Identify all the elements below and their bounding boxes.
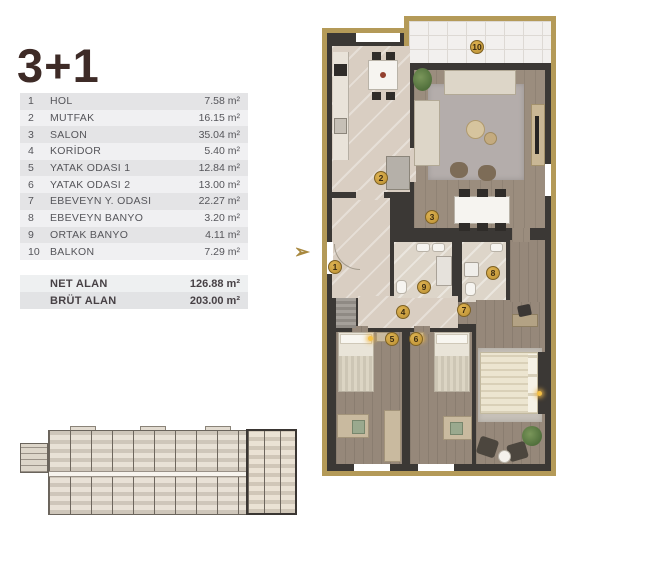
sofa (444, 70, 516, 95)
room-row-9: 9ORTAK BANYO4.11 m² (20, 227, 248, 244)
dining-chair (477, 189, 488, 197)
dining-chair (459, 223, 470, 231)
room-badge-balkon: 10 (470, 40, 484, 54)
room-row-1: 1HOL7.58 m² (20, 93, 248, 110)
summary-value: 126.88 m² (190, 278, 248, 290)
room-row-7: 7EBEVEYN Y. ODASI22.27 m² (20, 193, 248, 210)
bathroom-sink (490, 243, 503, 252)
summary-row-net-alan: NET ALAN126.88 m² (20, 275, 248, 292)
room-number: 2 (20, 112, 50, 124)
page-title: 3+1 (17, 42, 100, 89)
master-bedroom-entry-floor (510, 240, 545, 302)
living-window (545, 164, 551, 196)
room-badge-koridor: 4 (396, 305, 410, 319)
kitchen-chair (372, 92, 381, 100)
desk-chair (352, 420, 365, 434)
summary-row-brut-alan: BRÜT ALAN203.00 m² (20, 292, 248, 309)
plant-icon (522, 426, 542, 446)
summary-label: NET ALAN (20, 278, 190, 290)
kitchen-chair (386, 92, 395, 100)
room-number: 6 (20, 179, 50, 191)
room-number: 8 (20, 212, 50, 224)
wardrobe (384, 410, 401, 462)
pouf (478, 165, 496, 181)
floorplan-page: 3+1 1HOL7.58 m²2MUTFAK16.15 m²3SALON35.0… (0, 0, 660, 561)
room-name: EBEVEYN BANYO (50, 212, 204, 224)
room-name: YATAK ODASI 1 (50, 162, 199, 174)
dining-chair (459, 189, 470, 197)
room-area: 7.29 m² (204, 246, 248, 258)
room-number: 9 (20, 229, 50, 241)
room-number: 3 (20, 129, 50, 141)
bathroom-sink (416, 243, 430, 252)
room-name: BALKON (50, 246, 204, 258)
master-bed-pillows (528, 354, 537, 412)
toilet (396, 280, 407, 294)
bedroom1-window (354, 464, 390, 471)
room-area: 4.11 m² (205, 229, 248, 241)
kitchen-table-decor (380, 72, 386, 78)
entrance-arrow-icon: ➢ (294, 241, 310, 264)
bedroom2-window (418, 464, 454, 471)
room-number: 1 (20, 95, 50, 107)
toilet (465, 282, 476, 296)
bed-pillow (436, 334, 468, 344)
shower (436, 256, 452, 286)
dining-chair (477, 223, 488, 231)
wall-lamp-icon (368, 336, 373, 341)
bathroom-sink (432, 243, 445, 252)
room-name: HOL (50, 95, 204, 107)
coffee-table (466, 120, 485, 139)
living-master-door-gap (512, 228, 530, 242)
room-badge-mutfak: 2 (374, 171, 388, 185)
stove (334, 64, 347, 76)
room-number: 5 (20, 162, 50, 174)
balcony-wall (409, 63, 551, 70)
room-area: 12.84 m² (199, 162, 248, 174)
wall-lamp-icon (537, 391, 542, 396)
plant-icon (413, 68, 432, 91)
dining-chair (495, 189, 506, 197)
room-row-2: 2MUTFAK16.15 m² (20, 110, 248, 127)
room-badge-salon: 3 (425, 210, 439, 224)
room-area: 3.20 m² (204, 212, 248, 224)
room-area: 13.00 m² (199, 179, 248, 191)
room-row-5: 5YATAK ODASI 112.84 m² (20, 160, 248, 177)
room-badge-yatak-odasi-2: 6 (409, 332, 423, 346)
round-table (498, 450, 511, 463)
room-number: 10 (20, 246, 50, 258)
room-name: MUTFAK (50, 112, 199, 124)
room-row-8: 8EBEVEYN BANYO3.20 m² (20, 210, 248, 227)
bed-blanket (339, 356, 373, 391)
room-area: 22.27 m² (199, 195, 248, 207)
room-name: SALON (50, 129, 199, 141)
master-headboard-wall (538, 352, 546, 414)
room-area: 5.40 m² (204, 145, 248, 157)
room-row-10: 10BALKON7.29 m² (20, 243, 248, 260)
room-area: 7.58 m² (204, 95, 248, 107)
dining-table (454, 196, 510, 224)
room-row-6: 6YATAK ODASI 213.00 m² (20, 176, 248, 193)
bed-blanket (435, 356, 469, 391)
room-row-4: 4KORİDOR5.40 m² (20, 143, 248, 160)
hall-wardrobe (336, 298, 356, 328)
key-plan-highlighted-unit (246, 429, 297, 515)
kitchen-sink (334, 118, 347, 134)
rooms-table: 1HOL7.58 m²2MUTFAK16.15 m²3SALON35.04 m²… (20, 93, 248, 260)
room-area: 16.15 m² (199, 112, 248, 124)
kitchen-chair (372, 52, 381, 60)
room-row-3: 3SALON35.04 m² (20, 126, 248, 143)
desk-chair (450, 422, 463, 435)
kitchen-chair (386, 52, 395, 60)
room-name: EBEVEYN Y. ODASI (50, 195, 199, 207)
area-summary-table: NET ALAN126.88 m²BRÜT ALAN203.00 m² (20, 275, 248, 309)
room-number: 4 (20, 145, 50, 157)
kitchen-window (356, 33, 400, 42)
room-badge-ebeveyn-banyo: 8 (486, 266, 500, 280)
room-name: KORİDOR (50, 145, 204, 157)
room-badge-yatak-odasi-1: 5 (385, 332, 399, 346)
washing-machine (464, 262, 479, 277)
room-name: YATAK ODASI 2 (50, 179, 199, 191)
key-plan-stair-core (20, 443, 48, 473)
side-table (484, 132, 497, 145)
kitchen-cabinet (386, 156, 410, 190)
room-badge-ortak-banyo: 9 (417, 280, 431, 294)
tv (535, 116, 539, 154)
summary-label: BRÜT ALAN (20, 295, 190, 307)
dining-chair (495, 223, 506, 231)
sofa-chaise (414, 100, 440, 166)
kitchen-hall-door-gap (356, 190, 384, 200)
summary-value: 203.00 m² (190, 295, 248, 307)
room-badge-hol: 1 (328, 260, 342, 274)
pouf (450, 162, 468, 178)
room-number: 7 (20, 195, 50, 207)
room-badge-ebeveyn-y-odasi: 7 (457, 303, 471, 317)
room-area: 35.04 m² (199, 129, 248, 141)
room-name: ORTAK BANYO (50, 229, 205, 241)
